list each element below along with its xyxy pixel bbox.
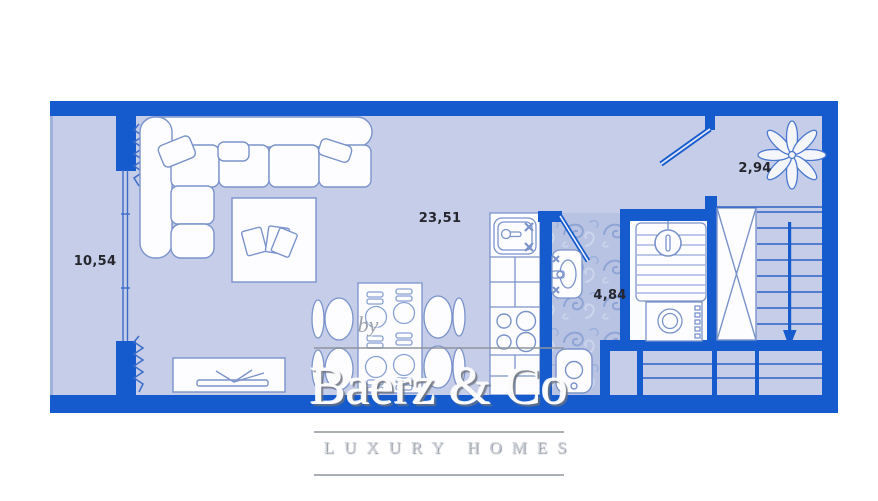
- balcony-wall-stub-top: [116, 116, 136, 171]
- room-label-hallway: 2,94: [729, 161, 781, 176]
- watermark-rule: [314, 347, 564, 349]
- boiler-icon: [636, 221, 706, 301]
- wardrobe-icon: [717, 208, 756, 340]
- room-label-living-room: 23,51: [414, 211, 466, 226]
- kitchen-sink-icon: [494, 218, 536, 254]
- wall-right: [822, 101, 838, 413]
- watermark-rule: [314, 474, 564, 476]
- utility-wall-left: [620, 221, 630, 340]
- dining-chair: [424, 296, 465, 338]
- room-label-bathroom: 4,84: [584, 288, 636, 303]
- kitchen-bath-wall: [540, 213, 552, 395]
- utility-wall-right: [707, 196, 717, 340]
- step-divider-1: [637, 351, 643, 395]
- sofa-cushion-tray: [218, 142, 249, 161]
- balcony-wall-stub-bottom: [116, 341, 136, 395]
- wall-bottom: [50, 395, 838, 413]
- utility-wall-top: [620, 209, 717, 221]
- balcony-glass-edge: [50, 116, 53, 396]
- dining-chair: [424, 346, 465, 388]
- dining-chair: [312, 348, 353, 390]
- room-label-balcony: 10,54: [69, 254, 121, 269]
- entrance-wall-stub: [705, 116, 715, 130]
- toilet-alcove-wall: [600, 340, 610, 395]
- floor-plan-drawing: [0, 0, 878, 501]
- step-divider-3: [755, 351, 759, 395]
- floor-plan-screenshot: 10,54 23,51 4,84 2,94 by Baerz & Co LUXU…: [0, 0, 878, 501]
- dining-table: [358, 283, 422, 393]
- plant-icon: [758, 121, 826, 189]
- washing-machine-icon: [646, 302, 702, 341]
- watermark-rule: [314, 431, 564, 433]
- wall-top: [50, 101, 838, 116]
- toilet-icon: [556, 349, 592, 393]
- tv-stand: [173, 358, 285, 392]
- dining-chair: [312, 298, 353, 340]
- coffee-table: [232, 198, 316, 282]
- step-divider-2: [712, 351, 717, 395]
- wash-basin-icon: [552, 250, 582, 298]
